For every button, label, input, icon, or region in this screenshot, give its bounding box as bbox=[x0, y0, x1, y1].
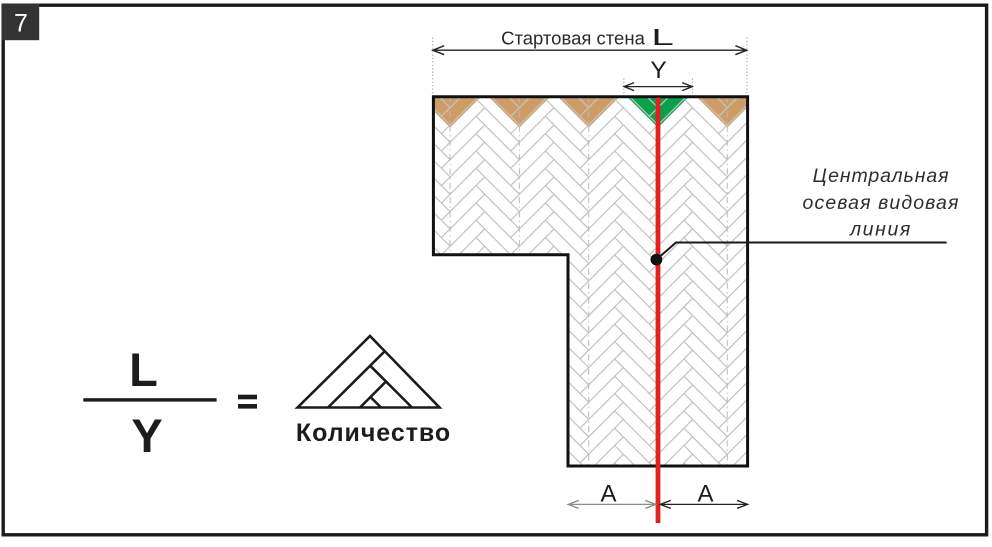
svg-text:7: 7 bbox=[14, 10, 28, 38]
svg-text:Y: Y bbox=[650, 57, 666, 84]
svg-text:Центральная: Центральная bbox=[813, 165, 950, 187]
svg-text:А: А bbox=[600, 481, 616, 508]
svg-text:Стартовая стена: Стартовая стена bbox=[501, 27, 645, 48]
svg-text:L: L bbox=[129, 343, 158, 396]
svg-text:А: А bbox=[697, 481, 713, 508]
svg-text:Y: Y bbox=[131, 409, 162, 462]
svg-text:L: L bbox=[651, 24, 673, 50]
svg-text:осевая видовая: осевая видовая bbox=[803, 192, 960, 214]
svg-text:Количество: Количество bbox=[296, 419, 451, 447]
svg-text:линия: линия bbox=[849, 219, 912, 241]
